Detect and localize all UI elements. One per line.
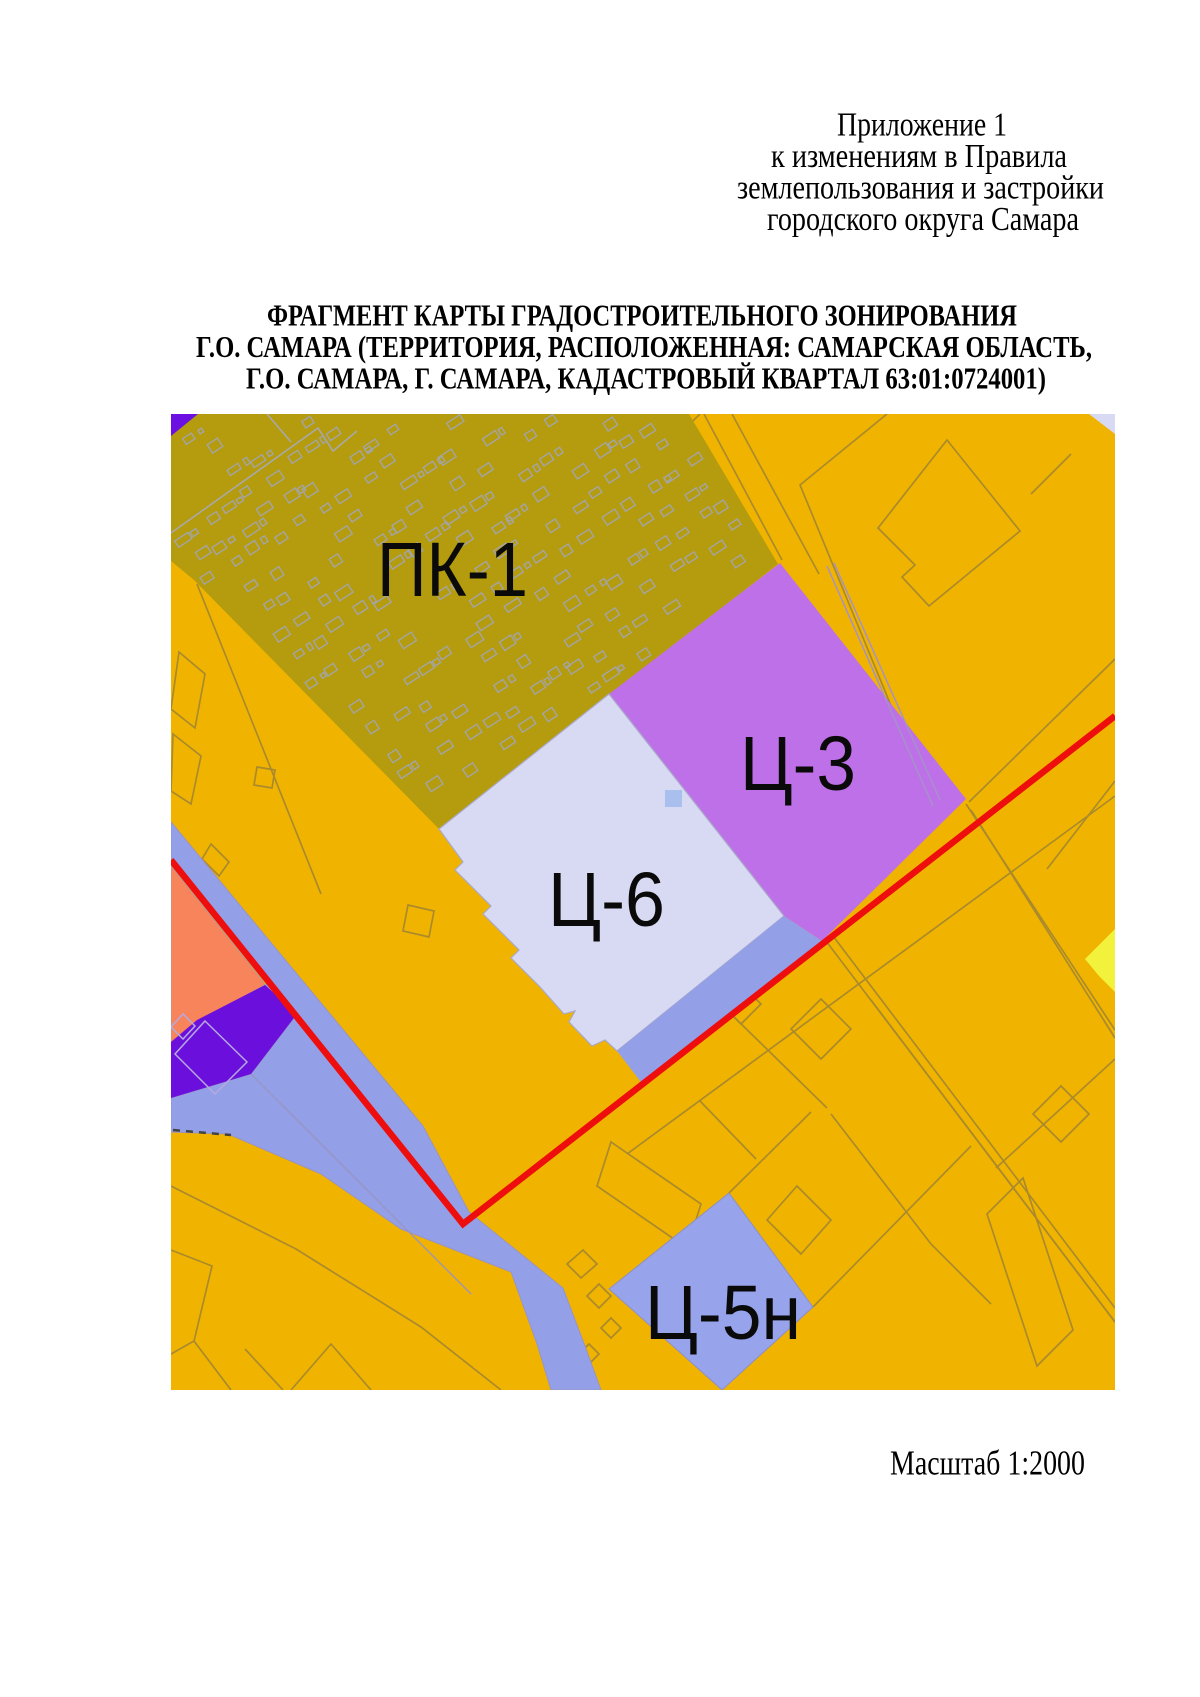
- svg-text:Г.О. САМАРА, Г. САМАРА, КАДАСТ: Г.О. САМАРА, Г. САМАРА, КАДАСТРОВЫЙ КВАР…: [246, 361, 1046, 396]
- svg-text:Г.О. САМАРА (ТЕРРИТОРИЯ, РАСПО: Г.О. САМАРА (ТЕРРИТОРИЯ, РАСПОЛОЖЕННАЯ: …: [196, 329, 1092, 364]
- svg-text:Масштаб 1:2000: Масштаб 1:2000: [890, 1445, 1085, 1483]
- svg-text:городского округа Самара: городского округа Самара: [767, 201, 1079, 238]
- svg-text:ФРАГМЕНТ КАРТЫ ГРАДОСТРОИТЕЛЬН: ФРАГМЕНТ КАРТЫ ГРАДОСТРОИТЕЛЬНОГО ЗОНИРО…: [267, 298, 1017, 333]
